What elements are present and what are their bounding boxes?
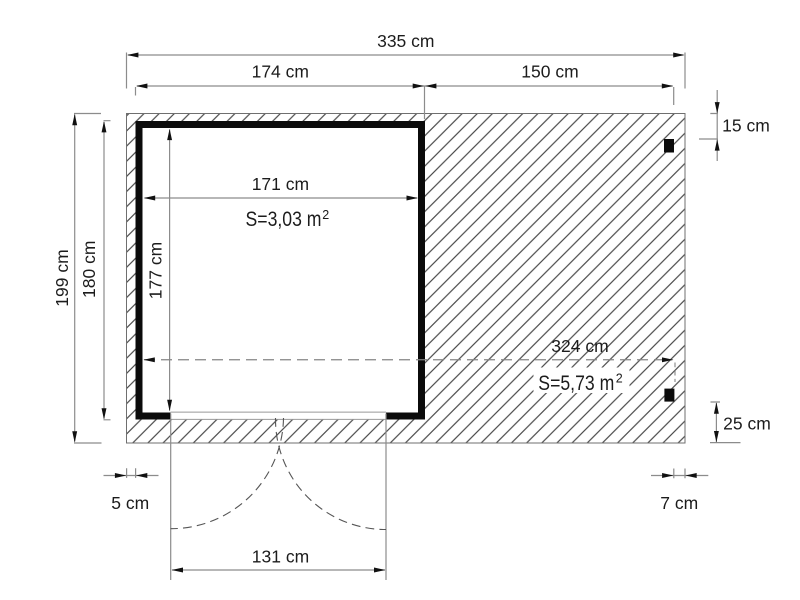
svg-text:5 cm: 5 cm [111, 493, 149, 513]
svg-text:15 cm: 15 cm [722, 116, 770, 136]
svg-text:S=3,03 m: S=3,03 m [246, 207, 322, 231]
svg-text:25 cm: 25 cm [723, 414, 771, 434]
svg-text:324 cm: 324 cm [551, 336, 608, 356]
svg-text:150 cm: 150 cm [521, 62, 578, 82]
svg-text:199 cm: 199 cm [52, 249, 72, 306]
svg-text:177 cm: 177 cm [146, 242, 166, 299]
svg-text:2: 2 [616, 372, 623, 386]
svg-text:171 cm: 171 cm [252, 174, 309, 194]
svg-text:174 cm: 174 cm [252, 62, 309, 82]
svg-text:7 cm: 7 cm [660, 493, 698, 513]
svg-text:131 cm: 131 cm [252, 546, 309, 566]
svg-text:2: 2 [322, 208, 329, 222]
svg-text:S=5,73 m: S=5,73 m [538, 371, 614, 395]
svg-text:335 cm: 335 cm [377, 31, 434, 51]
svg-text:180 cm: 180 cm [79, 241, 99, 298]
